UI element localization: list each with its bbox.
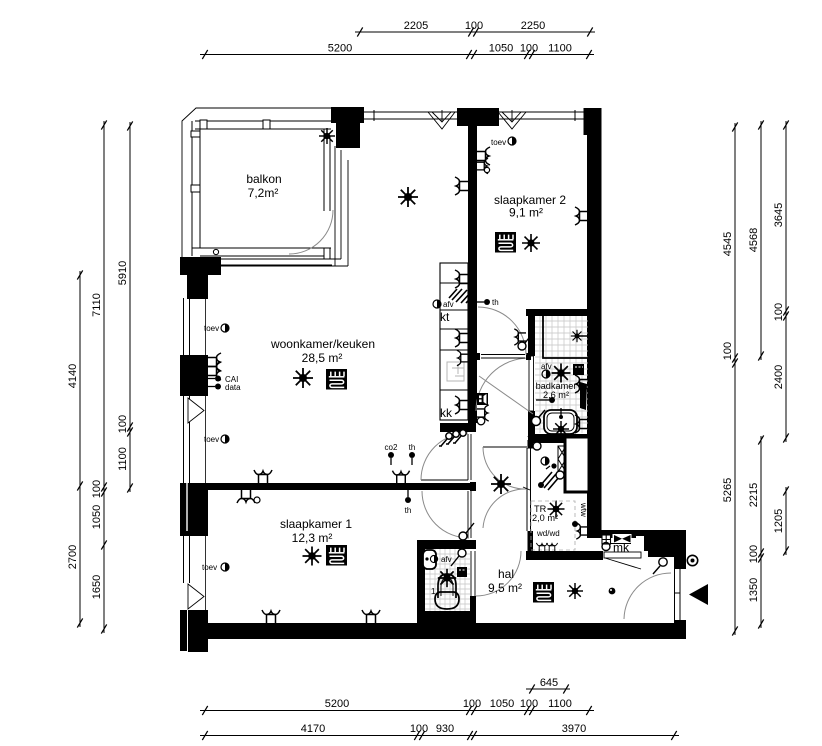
svg-text:2215: 2215 bbox=[748, 483, 760, 507]
svg-text:3645: 3645 bbox=[773, 203, 785, 227]
svg-text:100: 100 bbox=[410, 723, 428, 735]
svg-text:1350: 1350 bbox=[748, 578, 760, 602]
svg-text:toev: toev bbox=[202, 563, 217, 572]
svg-text:wd/wd: wd/wd bbox=[536, 529, 560, 538]
svg-text:2400: 2400 bbox=[773, 365, 785, 389]
svg-text:1100: 1100 bbox=[548, 698, 572, 710]
svg-text:1: 1 bbox=[431, 587, 436, 596]
svg-text:co2: co2 bbox=[385, 443, 398, 452]
svg-text:1100: 1100 bbox=[117, 447, 129, 471]
svg-text:100: 100 bbox=[91, 480, 103, 498]
svg-text:kt: kt bbox=[440, 310, 450, 324]
svg-text:100: 100 bbox=[465, 20, 483, 32]
svg-text:2,0 m²: 2,0 m² bbox=[532, 513, 558, 523]
svg-text:th: th bbox=[405, 506, 412, 515]
svg-text:5200: 5200 bbox=[328, 43, 352, 55]
svg-text:930: 930 bbox=[436, 723, 454, 735]
svg-text:toev: toev bbox=[491, 138, 506, 147]
svg-text:1050: 1050 bbox=[91, 505, 103, 529]
svg-text:3970: 3970 bbox=[562, 723, 586, 735]
svg-text:afv: afv bbox=[441, 555, 452, 564]
svg-text:4170: 4170 bbox=[301, 723, 325, 735]
svg-text:2250: 2250 bbox=[521, 20, 545, 32]
svg-text:toev: toev bbox=[204, 324, 219, 333]
svg-text:5200: 5200 bbox=[325, 698, 349, 710]
svg-text:7,2m²: 7,2m² bbox=[248, 186, 279, 200]
svg-text:7110: 7110 bbox=[91, 293, 103, 317]
svg-text:9,1 m²: 9,1 m² bbox=[509, 206, 543, 220]
svg-text:data: data bbox=[225, 383, 241, 392]
svg-text:woonkamer/keuken: woonkamer/keuken bbox=[270, 337, 375, 351]
svg-text:100: 100 bbox=[117, 415, 129, 433]
svg-text:1100: 1100 bbox=[548, 43, 572, 55]
svg-text:balkon: balkon bbox=[246, 172, 281, 186]
svg-text:mk: mk bbox=[613, 541, 630, 555]
svg-text:28,5 m²: 28,5 m² bbox=[302, 351, 343, 365]
svg-text:2,6 m²: 2,6 m² bbox=[543, 390, 569, 400]
svg-text:th: th bbox=[409, 443, 416, 452]
svg-text:100: 100 bbox=[463, 698, 481, 710]
svg-text:645: 645 bbox=[540, 677, 558, 689]
svg-text:4140: 4140 bbox=[67, 364, 79, 388]
svg-text:wtw: wtw bbox=[579, 502, 588, 517]
svg-text:100: 100 bbox=[773, 303, 785, 321]
svg-text:1050: 1050 bbox=[490, 698, 514, 710]
svg-text:9,5 m²: 9,5 m² bbox=[488, 581, 522, 595]
svg-text:1050: 1050 bbox=[489, 43, 513, 55]
svg-text:5265: 5265 bbox=[722, 478, 734, 502]
svg-text:afv: afv bbox=[443, 300, 454, 309]
svg-text:toev: toev bbox=[204, 435, 219, 444]
svg-text:kk: kk bbox=[440, 406, 453, 420]
svg-text:100: 100 bbox=[520, 698, 538, 710]
svg-text:slaapkamer 1: slaapkamer 1 bbox=[280, 517, 352, 531]
svg-text:th: th bbox=[492, 298, 499, 307]
svg-text:2205: 2205 bbox=[404, 20, 428, 32]
svg-text:12,3 m²: 12,3 m² bbox=[292, 531, 333, 545]
svg-text:2700: 2700 bbox=[67, 545, 79, 569]
svg-text:5910: 5910 bbox=[117, 261, 129, 285]
svg-text:4568: 4568 bbox=[748, 228, 760, 252]
svg-text:hal: hal bbox=[498, 567, 514, 581]
svg-text:1650: 1650 bbox=[91, 575, 103, 599]
svg-text:100: 100 bbox=[520, 43, 538, 55]
svg-text:1205: 1205 bbox=[773, 509, 785, 533]
svg-text:100: 100 bbox=[748, 545, 760, 563]
svg-text:4545: 4545 bbox=[722, 232, 734, 256]
svg-text:100: 100 bbox=[722, 342, 734, 360]
